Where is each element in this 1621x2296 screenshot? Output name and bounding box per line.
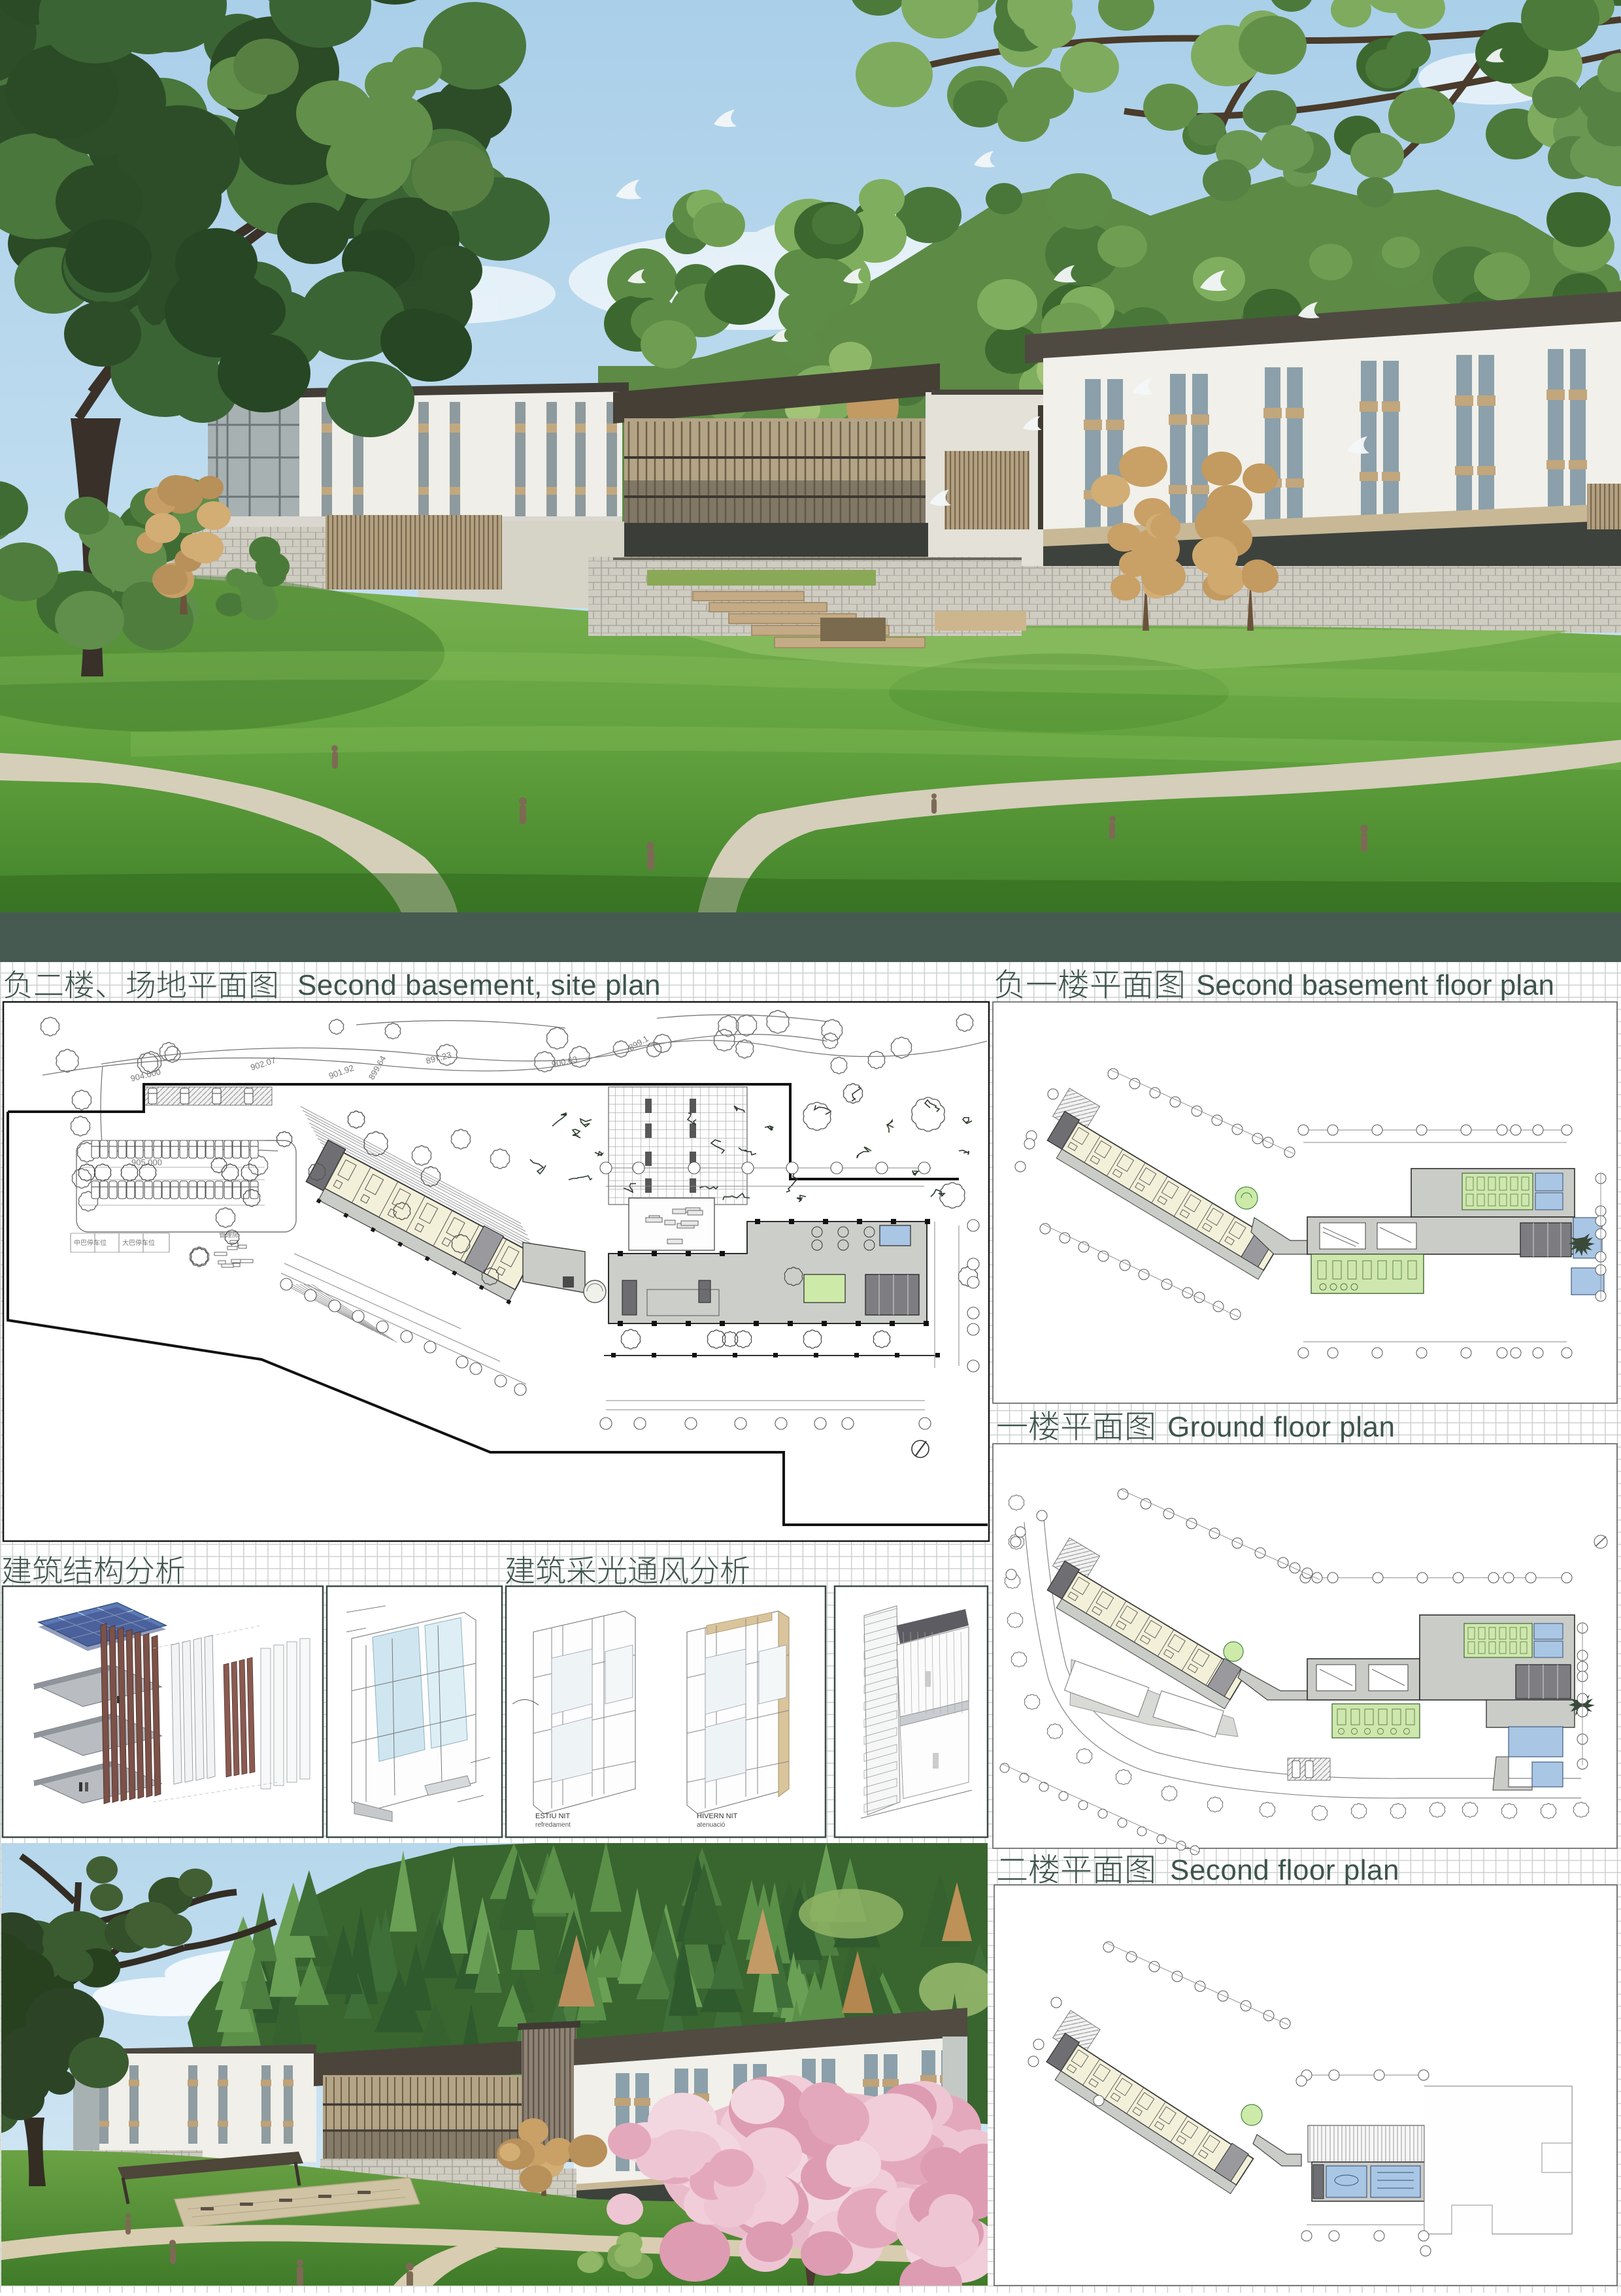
svg-text:refredament: refredament xyxy=(535,1822,571,1829)
svg-text:atenuació: atenuació xyxy=(697,1822,726,1829)
svg-text:ESTIU NIT: ESTIU NIT xyxy=(535,1812,570,1820)
svg-text:Second basement, site plan: Second basement, site plan xyxy=(297,969,661,1001)
svg-text:管理房: 管理房 xyxy=(219,1231,239,1239)
svg-text:HIVERN NIT: HIVERN NIT xyxy=(697,1812,738,1820)
svg-text:905.000: 905.000 xyxy=(131,1157,162,1167)
svg-text:Ground floor plan: Ground floor plan xyxy=(1167,1411,1395,1443)
svg-text:Second floor plan: Second floor plan xyxy=(1170,1854,1399,1886)
svg-text:Second basement floor plan: Second basement floor plan xyxy=(1196,969,1554,1001)
svg-text:中巴停车位: 中巴停车位 xyxy=(74,1239,107,1247)
svg-text:大巴停车位: 大巴停车位 xyxy=(122,1239,155,1247)
